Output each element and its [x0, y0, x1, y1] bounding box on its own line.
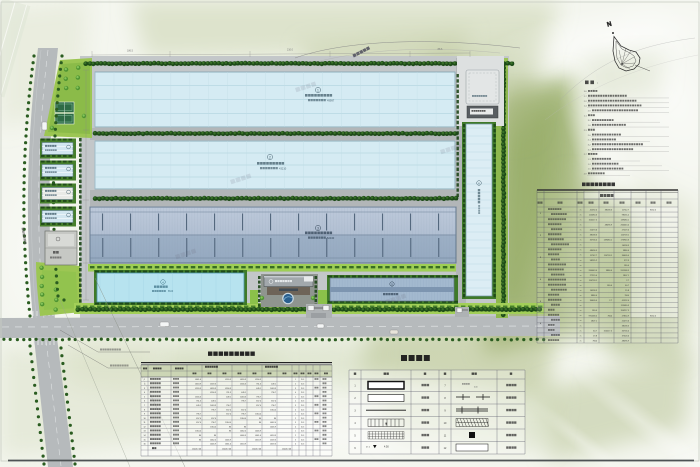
svg-text:15.3: 15.3	[301, 418, 304, 420]
svg-text:48096.9: 48096.9	[622, 340, 630, 342]
svg-text:15.3: 15.3	[301, 422, 304, 424]
svg-text:139480.1: 139480.1	[621, 220, 630, 222]
svg-text:0.00: 0.00	[474, 387, 478, 389]
svg-text:21473.6: 21473.6	[590, 230, 598, 232]
svg-text:657.4: 657.4	[271, 401, 276, 403]
svg-text:110718.1: 110718.1	[604, 255, 613, 257]
svg-text:98235.2: 98235.2	[590, 260, 598, 262]
svg-text:4659.3: 4659.3	[270, 444, 276, 446]
svg-text:10: 10	[143, 418, 145, 420]
svg-text:8: 8	[144, 409, 145, 411]
svg-text:15.3: 15.3	[301, 401, 304, 403]
svg-text:796.7: 796.7	[271, 405, 276, 407]
svg-text:15.3: 15.3	[301, 409, 304, 411]
svg-text:1463.3: 1463.3	[270, 388, 276, 390]
svg-text:972.3: 972.3	[624, 260, 630, 262]
svg-text:150217.5: 150217.5	[604, 330, 613, 332]
svg-text:86: 86	[199, 435, 201, 437]
svg-text:1364.4: 1364.4	[210, 426, 216, 428]
svg-text:150217.46: 150217.46	[282, 448, 291, 450]
svg-text:657.4: 657.4	[211, 418, 216, 420]
svg-text:41592.4: 41592.4	[590, 210, 598, 212]
svg-text:4659.3: 4659.3	[240, 379, 246, 381]
svg-text:3: 3	[317, 227, 319, 231]
svg-text:796.7: 796.7	[226, 405, 231, 407]
svg-text:4446.9: 4446.9	[210, 444, 216, 446]
svg-text:15: 15	[143, 439, 145, 441]
svg-text:4.50: 4.50	[384, 446, 389, 449]
svg-text:115080.3: 115080.3	[589, 215, 598, 217]
svg-text:98235.2: 98235.2	[622, 215, 630, 217]
svg-text:150217.46: 150217.46	[252, 448, 261, 450]
svg-text:180.4: 180.4	[592, 310, 598, 312]
svg-text:48096.9: 48096.9	[590, 250, 598, 252]
svg-text:3: 3	[144, 388, 145, 390]
svg-text:4: 4	[295, 444, 296, 446]
svg-text:34609.0: 34609.0	[590, 300, 598, 302]
svg-text:4462.4: 4462.4	[210, 439, 216, 441]
svg-text:52340: 52340	[327, 236, 335, 240]
svg-text:4556.3: 4556.3	[240, 383, 246, 385]
svg-text:657.4: 657.4	[256, 401, 261, 403]
svg-text:150217.46: 150217.46	[222, 448, 231, 450]
svg-text:1: 1	[295, 396, 296, 398]
svg-text:4556.3: 4556.3	[225, 388, 231, 390]
svg-text:11742.7: 11742.7	[590, 255, 598, 257]
svg-text:4559.3: 4559.3	[225, 379, 231, 381]
svg-text:657.4: 657.4	[196, 422, 201, 424]
svg-text:796.7: 796.7	[211, 409, 216, 411]
svg-text:4559.3: 4559.3	[270, 439, 276, 441]
svg-text:991568.5: 991568.5	[621, 270, 630, 272]
svg-text:150217.5: 150217.5	[589, 220, 598, 222]
svg-text:37303.6: 37303.6	[622, 335, 630, 337]
svg-text:15.3: 15.3	[301, 388, 304, 390]
svg-text:761.3: 761.3	[226, 392, 231, 394]
svg-text:15.3: 15.3	[301, 405, 304, 407]
svg-text:35756.0: 35756.0	[622, 330, 630, 332]
svg-text:21473.6: 21473.6	[622, 320, 630, 322]
svg-text:3: 3	[295, 388, 296, 390]
svg-text:1364.4: 1364.4	[255, 414, 261, 416]
svg-text:1: 1	[295, 379, 296, 381]
svg-text:4462.4: 4462.4	[270, 422, 276, 424]
svg-text:15.3: 15.3	[301, 414, 304, 416]
svg-text:3: 3	[295, 422, 296, 424]
svg-text:15.3: 15.3	[301, 435, 304, 437]
svg-text:449.1: 449.1	[226, 396, 231, 398]
svg-text:449.1: 449.1	[256, 388, 261, 390]
svg-text:8162.4: 8162.4	[650, 210, 656, 212]
svg-text:180.4: 180.4	[624, 265, 630, 267]
svg-text:38138.3: 38138.3	[605, 210, 613, 212]
svg-text:796.7: 796.7	[271, 392, 276, 394]
svg-text:1463.3: 1463.3	[210, 405, 216, 407]
svg-text:115080.3: 115080.3	[621, 305, 630, 307]
svg-text:4446.9: 4446.9	[270, 426, 276, 428]
svg-text:657.4: 657.4	[226, 414, 231, 416]
svg-text:27219.4: 27219.4	[590, 275, 598, 277]
svg-text:2: 2	[144, 383, 145, 385]
svg-text:15.3: 15.3	[301, 379, 304, 381]
svg-text:4653.9: 4653.9	[240, 444, 246, 446]
svg-text:4556.3: 4556.3	[210, 392, 216, 394]
svg-text:86: 86	[244, 426, 246, 428]
svg-text:449.1: 449.1	[196, 405, 201, 407]
svg-text:43210: 43210	[279, 166, 287, 170]
svg-text:11742.7: 11742.7	[622, 210, 630, 212]
svg-text:12: 12	[143, 426, 145, 428]
svg-text:4659.3: 4659.3	[210, 388, 216, 390]
svg-text:88.6: 88.6	[438, 48, 443, 51]
svg-text:86: 86	[229, 426, 231, 428]
svg-text:4661.6: 4661.6	[195, 379, 201, 381]
svg-text:15.3: 15.3	[301, 383, 304, 385]
svg-text:86: 86	[274, 418, 276, 420]
svg-text:2: 2	[295, 401, 296, 403]
svg-text:796.7: 796.7	[241, 401, 246, 403]
svg-text:15.3: 15.3	[301, 426, 304, 428]
svg-text:150217.5: 150217.5	[621, 310, 630, 312]
svg-text:8162.4: 8162.4	[650, 315, 656, 317]
svg-text:2: 2	[269, 156, 271, 160]
svg-text:9884.4: 9884.4	[623, 250, 630, 252]
svg-text:4559.3: 4559.3	[210, 383, 216, 385]
svg-text:186.5: 186.5	[127, 50, 134, 53]
svg-text:991568.5: 991568.5	[589, 315, 598, 317]
svg-text:2: 2	[295, 435, 296, 437]
svg-text:2: 2	[295, 418, 296, 420]
svg-text:9: 9	[144, 414, 145, 416]
svg-text:86: 86	[229, 431, 231, 433]
svg-text:4653.9: 4653.9	[195, 383, 201, 385]
svg-text:6: 6	[144, 401, 145, 403]
svg-text:13: 13	[143, 431, 145, 433]
svg-text:86: 86	[259, 422, 261, 424]
svg-text:16598.3: 16598.3	[622, 245, 630, 247]
svg-text:41592.4: 41592.4	[622, 300, 630, 302]
svg-text:4446.9: 4446.9	[225, 439, 231, 441]
svg-text:38138.3: 38138.3	[622, 325, 630, 327]
svg-text:49997: 49997	[327, 98, 335, 102]
svg-text:4661.6: 4661.6	[255, 435, 261, 437]
svg-text:796.7: 796.7	[211, 422, 216, 424]
svg-text:449.1: 449.1	[211, 401, 216, 403]
svg-text:657.4: 657.4	[226, 409, 231, 411]
svg-text:34609.0: 34609.0	[622, 255, 630, 257]
svg-text:16: 16	[143, 444, 145, 446]
svg-text:16598.3: 16598.3	[590, 290, 598, 292]
svg-text:7: 7	[144, 405, 145, 407]
svg-text:27219.4: 27219.4	[622, 230, 630, 232]
svg-text:449.1: 449.1	[271, 383, 276, 385]
svg-text:4462.4: 4462.4	[240, 431, 246, 433]
svg-text:4556.3: 4556.3	[255, 379, 261, 381]
svg-text:761.3: 761.3	[196, 401, 201, 403]
svg-text:173943.3: 173943.3	[621, 240, 630, 242]
svg-text:657.4: 657.4	[241, 409, 246, 411]
svg-text:4: 4	[295, 409, 296, 411]
svg-text:9884.4: 9884.4	[606, 270, 613, 272]
svg-text:1: 1	[144, 379, 145, 381]
svg-text:180.4: 180.4	[607, 285, 613, 287]
svg-text:150217.46: 150217.46	[192, 448, 201, 450]
svg-text:1364.4: 1364.4	[270, 409, 276, 411]
svg-text:↑: ↑	[385, 421, 387, 426]
svg-text:3: 3	[295, 439, 296, 441]
svg-text:4653.9: 4653.9	[255, 439, 261, 441]
svg-text:1463.3: 1463.3	[240, 396, 246, 398]
svg-text:1364.4: 1364.4	[195, 431, 201, 433]
svg-text:48096.9: 48096.9	[605, 225, 613, 227]
svg-text:15.3: 15.3	[301, 439, 304, 441]
svg-text:110718.1: 110718.1	[589, 280, 598, 282]
svg-text:4: 4	[144, 392, 145, 394]
svg-text:4653.9: 4653.9	[270, 435, 276, 437]
svg-text:796.7: 796.7	[256, 396, 261, 398]
svg-text:4559.3: 4559.3	[195, 388, 201, 390]
svg-text:86: 86	[199, 439, 201, 441]
svg-text:260043.4: 260043.4	[621, 225, 630, 227]
svg-text:4446.9: 4446.9	[255, 431, 261, 433]
svg-text:14: 14	[143, 435, 145, 437]
svg-text:4661.6: 4661.6	[225, 444, 231, 446]
svg-text:110718.1: 110718.1	[621, 235, 630, 237]
svg-text:260043.4: 260043.4	[589, 270, 598, 272]
svg-text:1: 1	[295, 431, 296, 433]
svg-text:1: 1	[317, 89, 319, 93]
svg-text:139480.1: 139480.1	[604, 240, 613, 242]
svg-text:2: 2	[295, 383, 296, 385]
svg-text:657.4: 657.4	[196, 418, 201, 420]
svg-text:35756.0: 35756.0	[590, 240, 598, 242]
svg-text:657.4: 657.4	[256, 405, 261, 407]
svg-text:4556.3: 4556.3	[195, 396, 201, 398]
svg-text:796.7: 796.7	[196, 414, 201, 416]
svg-text:15.3: 15.3	[301, 431, 304, 433]
svg-text:4: 4	[295, 426, 296, 428]
svg-text:1807.1: 1807.1	[591, 320, 598, 322]
svg-text:4446.9: 4446.9	[240, 435, 246, 437]
svg-text:86: 86	[259, 418, 261, 420]
svg-text:1: 1	[295, 414, 296, 416]
svg-text:8640: 8640	[168, 291, 174, 293]
svg-text:15.3: 15.3	[301, 392, 304, 394]
svg-text:796.7: 796.7	[241, 414, 246, 416]
svg-text:210.0: 210.0	[287, 49, 294, 52]
svg-text:86: 86	[214, 435, 216, 437]
svg-text:5: 5	[144, 396, 145, 398]
svg-text:15.3: 15.3	[301, 396, 304, 398]
svg-text:1364.4: 1364.4	[240, 418, 246, 420]
svg-text:11: 11	[144, 422, 146, 424]
svg-text:27850.9: 27850.9	[622, 315, 630, 317]
svg-text:15.3: 15.3	[301, 444, 304, 446]
svg-text:9884.4: 9884.4	[591, 295, 598, 297]
svg-text:4: 4	[295, 392, 296, 394]
svg-text:449.1: 449.1	[241, 392, 246, 394]
svg-text:1364.4: 1364.4	[225, 422, 231, 424]
svg-text:38138.3: 38138.3	[590, 235, 598, 237]
svg-text:761.3: 761.3	[256, 383, 261, 385]
svg-text::: :	[597, 81, 598, 85]
svg-text:3: 3	[295, 405, 296, 407]
svg-text:1807.1: 1807.1	[623, 275, 630, 277]
